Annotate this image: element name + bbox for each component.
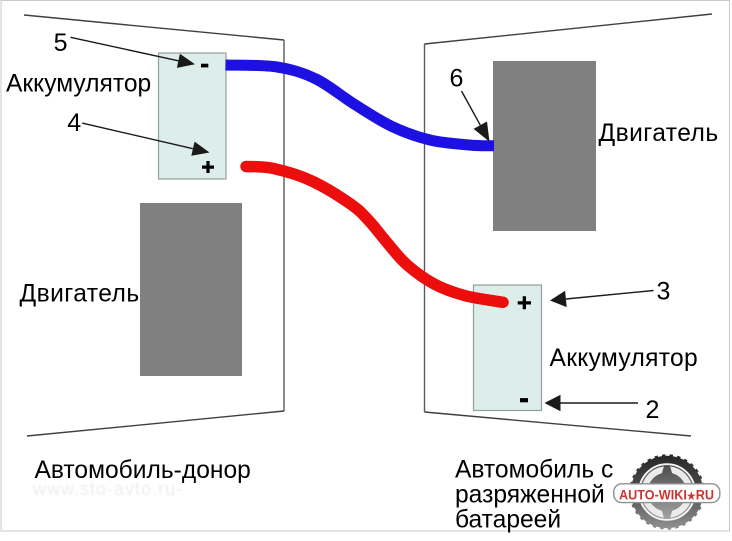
svg-text:6: 6: [450, 65, 464, 93]
svg-text:Двигатель: Двигатель: [599, 120, 719, 147]
svg-text:2: 2: [646, 396, 660, 424]
svg-text:3: 3: [657, 278, 671, 306]
svg-text:Двигатель: Двигатель: [20, 281, 140, 308]
svg-text:4: 4: [67, 109, 81, 137]
svg-text:разряженной: разряженной: [455, 482, 605, 509]
svg-text:AUTO-WIKI★RU: AUTO-WIKI★RU: [619, 487, 714, 502]
svg-text:батареей: батареей: [455, 507, 561, 534]
svg-text:Аккумулятор: Аккумулятор: [6, 71, 151, 98]
svg-text:Автомобиль-донор: Автомобиль-донор: [35, 457, 251, 484]
svg-text:Аккумулятор: Аккумулятор: [550, 345, 698, 372]
svg-text:5: 5: [54, 29, 68, 57]
svg-text:Автомобиль с: Автомобиль с: [455, 457, 613, 484]
